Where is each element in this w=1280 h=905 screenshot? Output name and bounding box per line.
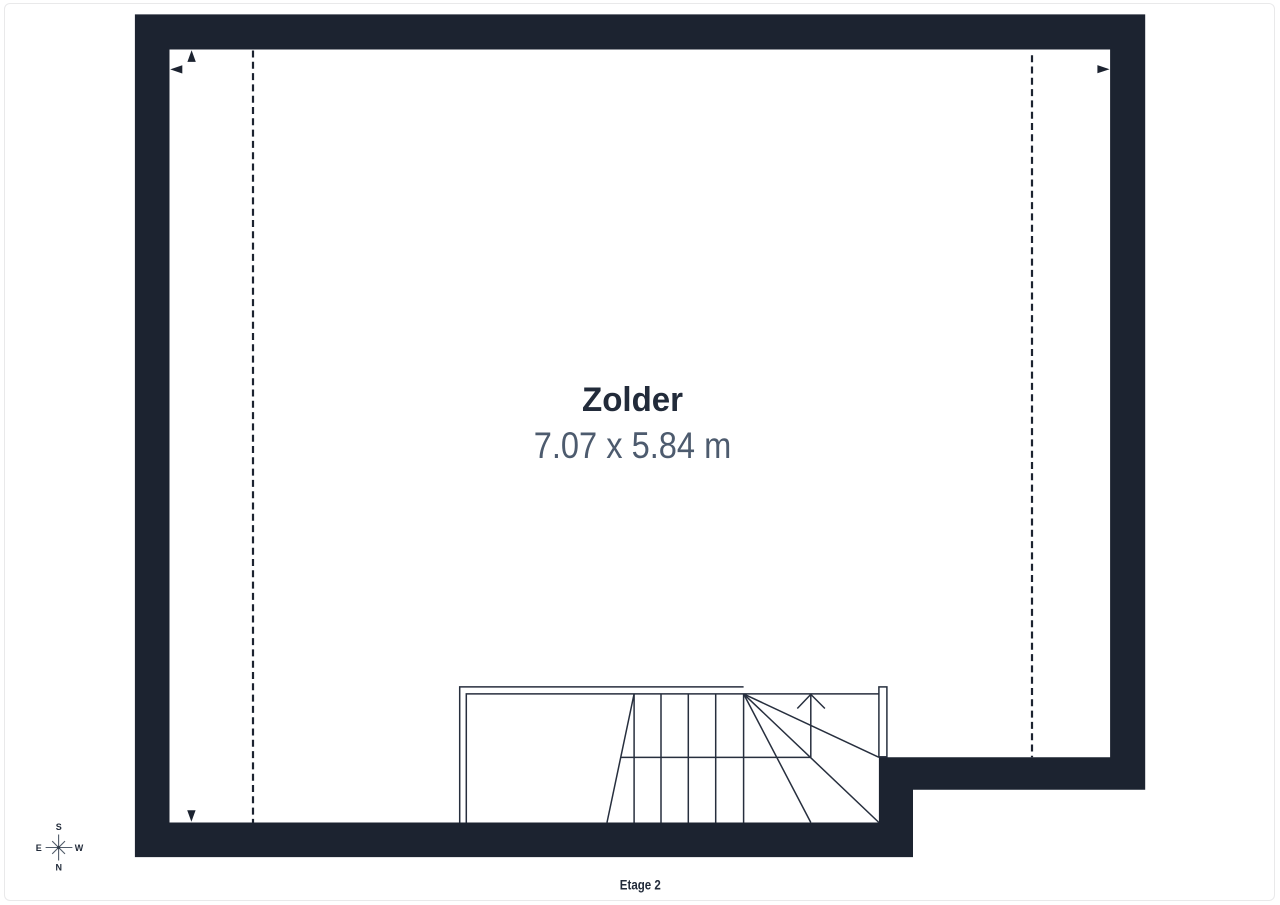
svg-text:Etage 2: Etage 2	[620, 876, 661, 892]
svg-text:W: W	[75, 843, 84, 853]
svg-text:7.07 x 5.84 m: 7.07 x 5.84 m	[534, 425, 732, 466]
svg-text:N: N	[55, 863, 62, 873]
svg-text:S: S	[56, 822, 62, 832]
svg-text:Zolder: Zolder	[582, 381, 683, 419]
svg-text:E: E	[36, 843, 42, 853]
